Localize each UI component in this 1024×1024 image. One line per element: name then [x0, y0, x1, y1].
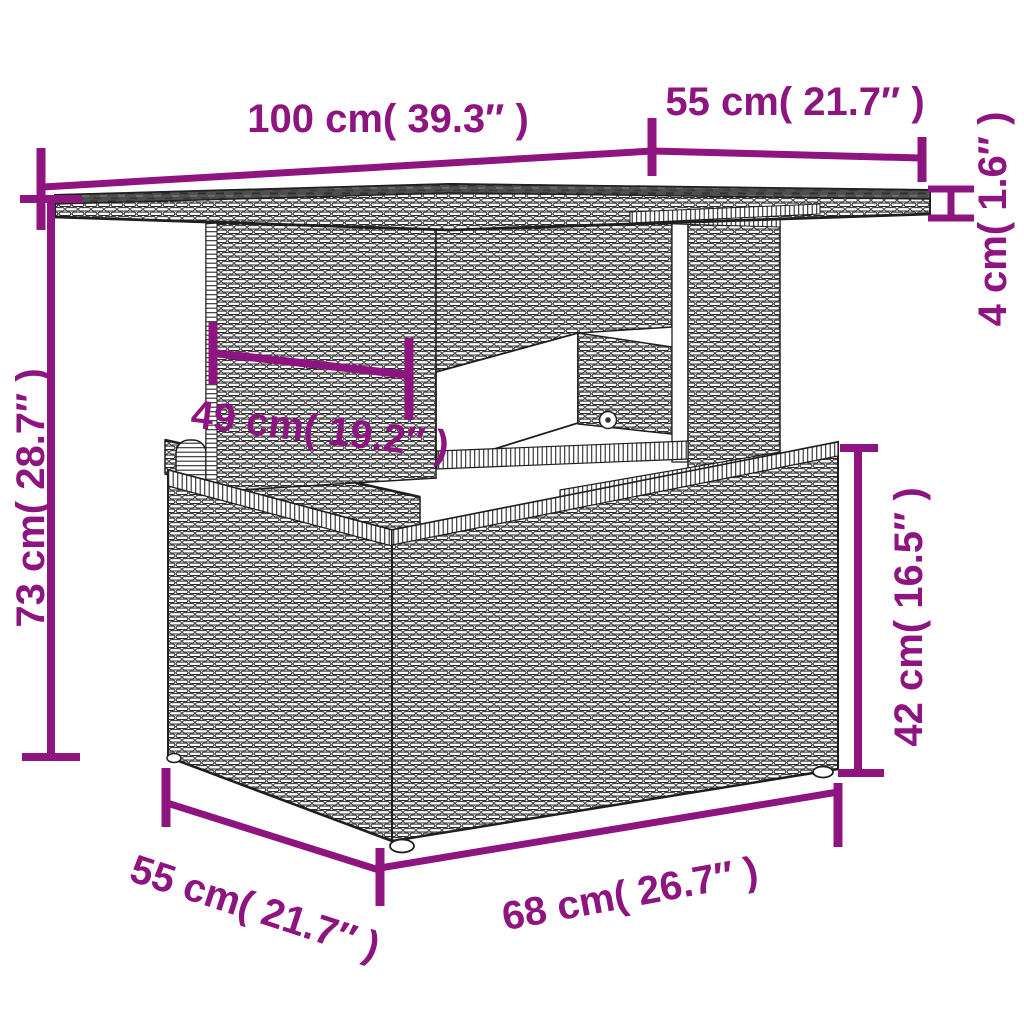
- dimension-line-top-thickness: [928, 189, 974, 218]
- left-foot: [167, 754, 181, 763]
- dimension-label-total-height: 73 cm( 28.7″ ): [11, 368, 51, 627]
- base-right-wall: [392, 442, 838, 841]
- dimension-line-top-depth: [652, 137, 922, 182]
- front-foot: [390, 840, 414, 853]
- dimension-label-top-length: 100 cm( 39.3″ ): [247, 99, 529, 139]
- dimension-label-top-thickness: 4 cm( 1.6″ ): [973, 112, 1013, 327]
- table-illustration: [55, 184, 930, 853]
- dimension-label-top-depth: 55 cm( 21.7″ ): [665, 82, 924, 122]
- dimension-line-base-height: [838, 448, 884, 773]
- base-box: [167, 442, 838, 853]
- dimension-label-base-height: 42 cm( 16.5″ ): [889, 487, 929, 746]
- pedestal-back-panel: [578, 333, 672, 434]
- pedestal-right-leg: [688, 211, 780, 480]
- tabletop: [55, 184, 930, 230]
- right-foot: [813, 767, 833, 778]
- pedestal-column: [206, 210, 780, 505]
- product-dimensions-diagram: 100 cm( 39.3″ ) 55 cm( 21.7″ ) 4 cm( 1.6…: [0, 0, 1024, 1024]
